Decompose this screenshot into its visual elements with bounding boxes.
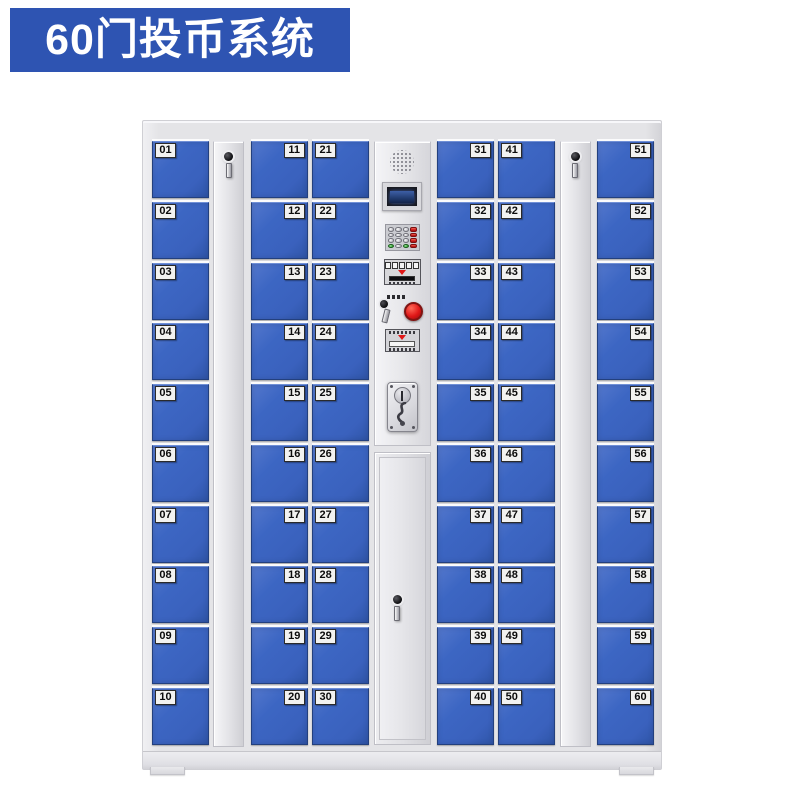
door-number-plate: 09: [155, 629, 176, 644]
locker-door-05: 05: [152, 384, 209, 441]
locker-door-19: 19: [251, 627, 308, 684]
lock-and-button-row: [375, 294, 430, 324]
door-number-plate: 46: [501, 447, 522, 462]
locker-door-23: 23: [312, 263, 369, 320]
door-number-plate: 48: [501, 568, 522, 583]
instruction-caption-marks: [389, 348, 415, 351]
keypad-key-red: [410, 244, 417, 249]
locker-door-39: 39: [437, 627, 494, 684]
locker-door-21: 21: [312, 141, 369, 198]
locker-door-30: 30: [312, 688, 369, 745]
door-number-plate: 10: [155, 690, 176, 705]
door-number-plate: 37: [470, 508, 491, 523]
locker-door-04: 04: [152, 323, 209, 380]
keyhole-icon: [571, 152, 580, 161]
keypad-key: [395, 244, 402, 249]
locker-door-53: 53: [597, 263, 654, 320]
door-number-plate: 35: [470, 386, 491, 401]
locker-door-35: 35: [437, 384, 494, 441]
door-number-plate: 27: [315, 508, 336, 523]
locker-door-26: 26: [312, 445, 369, 502]
locker-door-54: 54: [597, 323, 654, 380]
locker-door-56: 56: [597, 445, 654, 502]
keypad-key: [388, 227, 395, 232]
instruction-plate: [385, 329, 420, 352]
keypad-key: [388, 238, 395, 243]
locker-door-50: 50: [498, 688, 555, 745]
cabinet-base: [143, 751, 661, 769]
card-slot: [389, 276, 415, 281]
locker-door-51: 51: [597, 141, 654, 198]
keypad-key: [395, 233, 402, 238]
door-number-plate: 16: [284, 447, 305, 462]
door-number-plate: 52: [630, 204, 651, 219]
screw-icon: [390, 385, 393, 388]
locker-door-52: 52: [597, 202, 654, 259]
card-reader-plate: [384, 259, 421, 285]
coin-slit-icon: [401, 391, 403, 401]
locker-door-09: 09: [152, 627, 209, 684]
cabinet-foot-left: [150, 767, 185, 775]
card-reader-caption-marks: [389, 282, 415, 284]
locker-door-41: 41: [498, 141, 555, 198]
door-number-plate: 36: [470, 447, 491, 462]
locker-door-12: 12: [251, 202, 308, 259]
locker-door-24: 24: [312, 323, 369, 380]
locker-door-57: 57: [597, 506, 654, 563]
locker-door-06: 06: [152, 445, 209, 502]
keypad-key: [403, 238, 410, 243]
locker-door-42: 42: [498, 202, 555, 259]
door-column-4: 31323334353637383940: [437, 141, 492, 745]
locker-door-02: 02: [152, 202, 209, 259]
maintenance-door: [374, 452, 431, 745]
instruction-text-marks: [389, 331, 415, 334]
screw-icon: [412, 385, 415, 388]
down-arrow-icon: [398, 335, 406, 340]
title-badge: 60门投币系统: [10, 8, 350, 72]
locker-door-46: 46: [498, 445, 555, 502]
door-number-plate: 15: [284, 386, 305, 401]
door-number-plate: 30: [315, 690, 336, 705]
screw-icon: [390, 426, 393, 429]
control-panel-door: [374, 141, 431, 446]
locker-door-07: 07: [152, 506, 209, 563]
door-number-plate: 14: [284, 325, 305, 340]
locker-door-60: 60: [597, 688, 654, 745]
door-column-5: 41424344454647484950: [498, 141, 553, 745]
door-number-plate: 31: [470, 143, 491, 158]
door-number-plate: 45: [501, 386, 522, 401]
locker-door-15: 15: [251, 384, 308, 441]
locker-door-01: 01: [152, 141, 209, 198]
door-number-plate: 40: [470, 690, 491, 705]
keypad-key: [388, 233, 395, 238]
control-key-lock-icon: [380, 300, 392, 323]
locker-door-40: 40: [437, 688, 494, 745]
locker-door-08: 08: [152, 566, 209, 623]
locker-door-13: 13: [251, 263, 308, 320]
door-number-plate: 53: [630, 265, 651, 280]
door-number-plate: 56: [630, 447, 651, 462]
locker-door-49: 49: [498, 627, 555, 684]
locker-door-31: 31: [437, 141, 494, 198]
key-lock-icon: [224, 152, 233, 178]
door-number-plate: 55: [630, 386, 651, 401]
door-number-plate: 03: [155, 265, 176, 280]
locker-door-22: 22: [312, 202, 369, 259]
locker-door-55: 55: [597, 384, 654, 441]
indicator-marks: [387, 295, 405, 299]
door-number-plate: 57: [630, 508, 651, 523]
door-number-plate: 60: [630, 690, 651, 705]
door-number-plate: 19: [284, 629, 305, 644]
door-number-plate: 04: [155, 325, 176, 340]
knob-icon: [400, 421, 405, 426]
door-number-plate: 05: [155, 386, 176, 401]
door-number-plate: 22: [315, 204, 336, 219]
door-number-plate: 24: [315, 325, 336, 340]
door-number-plate: 58: [630, 568, 651, 583]
door-number-plate: 13: [284, 265, 305, 280]
door-number-plate: 44: [501, 325, 522, 340]
down-arrow-icon: [398, 270, 406, 275]
key-shaft-icon: [381, 308, 390, 323]
locker-door-45: 45: [498, 384, 555, 441]
door-number-plate: 23: [315, 265, 336, 280]
door-number-plate: 07: [155, 508, 176, 523]
key-icon: [394, 606, 400, 621]
coin-slot-mechanism: [387, 382, 418, 432]
keypad-key: [403, 233, 410, 238]
locker-door-11: 11: [251, 141, 308, 198]
keypad-key-red: [410, 233, 417, 238]
keypad-key: [395, 238, 402, 243]
locker-door-47: 47: [498, 506, 555, 563]
door-number-plate: 42: [501, 204, 522, 219]
door-column-2: 11121314151617181920: [251, 141, 306, 745]
door-number-plate: 02: [155, 204, 176, 219]
key-head-icon: [380, 300, 388, 308]
keypad-key-green: [403, 244, 410, 249]
keyhole-icon: [224, 152, 233, 161]
locker-door-32: 32: [437, 202, 494, 259]
locker-door-44: 44: [498, 323, 555, 380]
door-number-plate: 18: [284, 568, 305, 583]
lcd-screen: [382, 182, 422, 211]
locker-door-16: 16: [251, 445, 308, 502]
speaker-grill-icon: [390, 150, 414, 174]
door-number-plate: 38: [470, 568, 491, 583]
locker-door-17: 17: [251, 506, 308, 563]
right-lock-panel: [560, 141, 591, 747]
locker-cabinet: 01020304050607080910 1112131415161718192…: [142, 120, 662, 770]
coin-return-button: [404, 302, 423, 321]
door-number-plate: 12: [284, 204, 305, 219]
locker-door-59: 59: [597, 627, 654, 684]
door-number-plate: 50: [501, 690, 522, 705]
door-number-plate: 17: [284, 508, 305, 523]
keypad-key: [395, 227, 402, 232]
locker-door-33: 33: [437, 263, 494, 320]
keypad-key-red: [410, 238, 417, 243]
locker-door-58: 58: [597, 566, 654, 623]
left-lock-panel: [213, 141, 244, 747]
keypad: [385, 224, 420, 251]
door-number-plate: 21: [315, 143, 336, 158]
door-number-plate: 59: [630, 629, 651, 644]
key-icon: [226, 163, 232, 178]
screw-icon: [412, 426, 415, 429]
control-column: [374, 141, 431, 745]
key-lock-icon: [571, 152, 580, 178]
locker-door-43: 43: [498, 263, 555, 320]
keyhole-icon: [393, 595, 402, 604]
door-number-plate: 11: [284, 143, 305, 158]
door-column-1: 01020304050607080910: [152, 141, 207, 745]
locker-door-03: 03: [152, 263, 209, 320]
door-number-plate: 49: [501, 629, 522, 644]
keypad-key-red: [410, 227, 417, 232]
locker-door-27: 27: [312, 506, 369, 563]
card-reader-label-marks: [385, 262, 419, 269]
door-number-plate: 08: [155, 568, 176, 583]
locker-door-37: 37: [437, 506, 494, 563]
door-number-plate: 29: [315, 629, 336, 644]
door-number-plate: 51: [630, 143, 651, 158]
key-lock-icon: [393, 595, 402, 621]
door-number-plate: 47: [501, 508, 522, 523]
lcd-display: [390, 191, 414, 203]
locker-door-18: 18: [251, 566, 308, 623]
cabinet-columns: 01020304050607080910 1112131415161718192…: [152, 141, 652, 745]
door-number-plate: 01: [155, 143, 176, 158]
locker-door-38: 38: [437, 566, 494, 623]
door-number-plate: 33: [470, 265, 491, 280]
door-number-plate: 28: [315, 568, 336, 583]
door-number-plate: 25: [315, 386, 336, 401]
door-column-6: 51525354555657585960: [597, 141, 652, 745]
locker-door-14: 14: [251, 323, 308, 380]
instruction-bar: [389, 341, 415, 347]
cabinet-foot-right: [619, 767, 654, 775]
keypad-key: [403, 227, 410, 232]
door-number-plate: 26: [315, 447, 336, 462]
locker-door-36: 36: [437, 445, 494, 502]
locker-door-20: 20: [251, 688, 308, 745]
lcd-screen-frame: [387, 187, 417, 206]
door-number-plate: 39: [470, 629, 491, 644]
keypad-key-green: [388, 244, 395, 249]
door-number-plate: 54: [630, 325, 651, 340]
key-icon: [572, 163, 578, 178]
locker-door-29: 29: [312, 627, 369, 684]
door-number-plate: 41: [501, 143, 522, 158]
door-column-3: 21222324252627282930: [312, 141, 367, 745]
door-number-plate: 32: [470, 204, 491, 219]
locker-door-34: 34: [437, 323, 494, 380]
door-number-plate: 34: [470, 325, 491, 340]
locker-door-25: 25: [312, 384, 369, 441]
locker-door-48: 48: [498, 566, 555, 623]
locker-door-28: 28: [312, 566, 369, 623]
door-number-plate: 43: [501, 265, 522, 280]
door-number-plate: 06: [155, 447, 176, 462]
locker-door-10: 10: [152, 688, 209, 745]
door-number-plate: 20: [284, 690, 305, 705]
